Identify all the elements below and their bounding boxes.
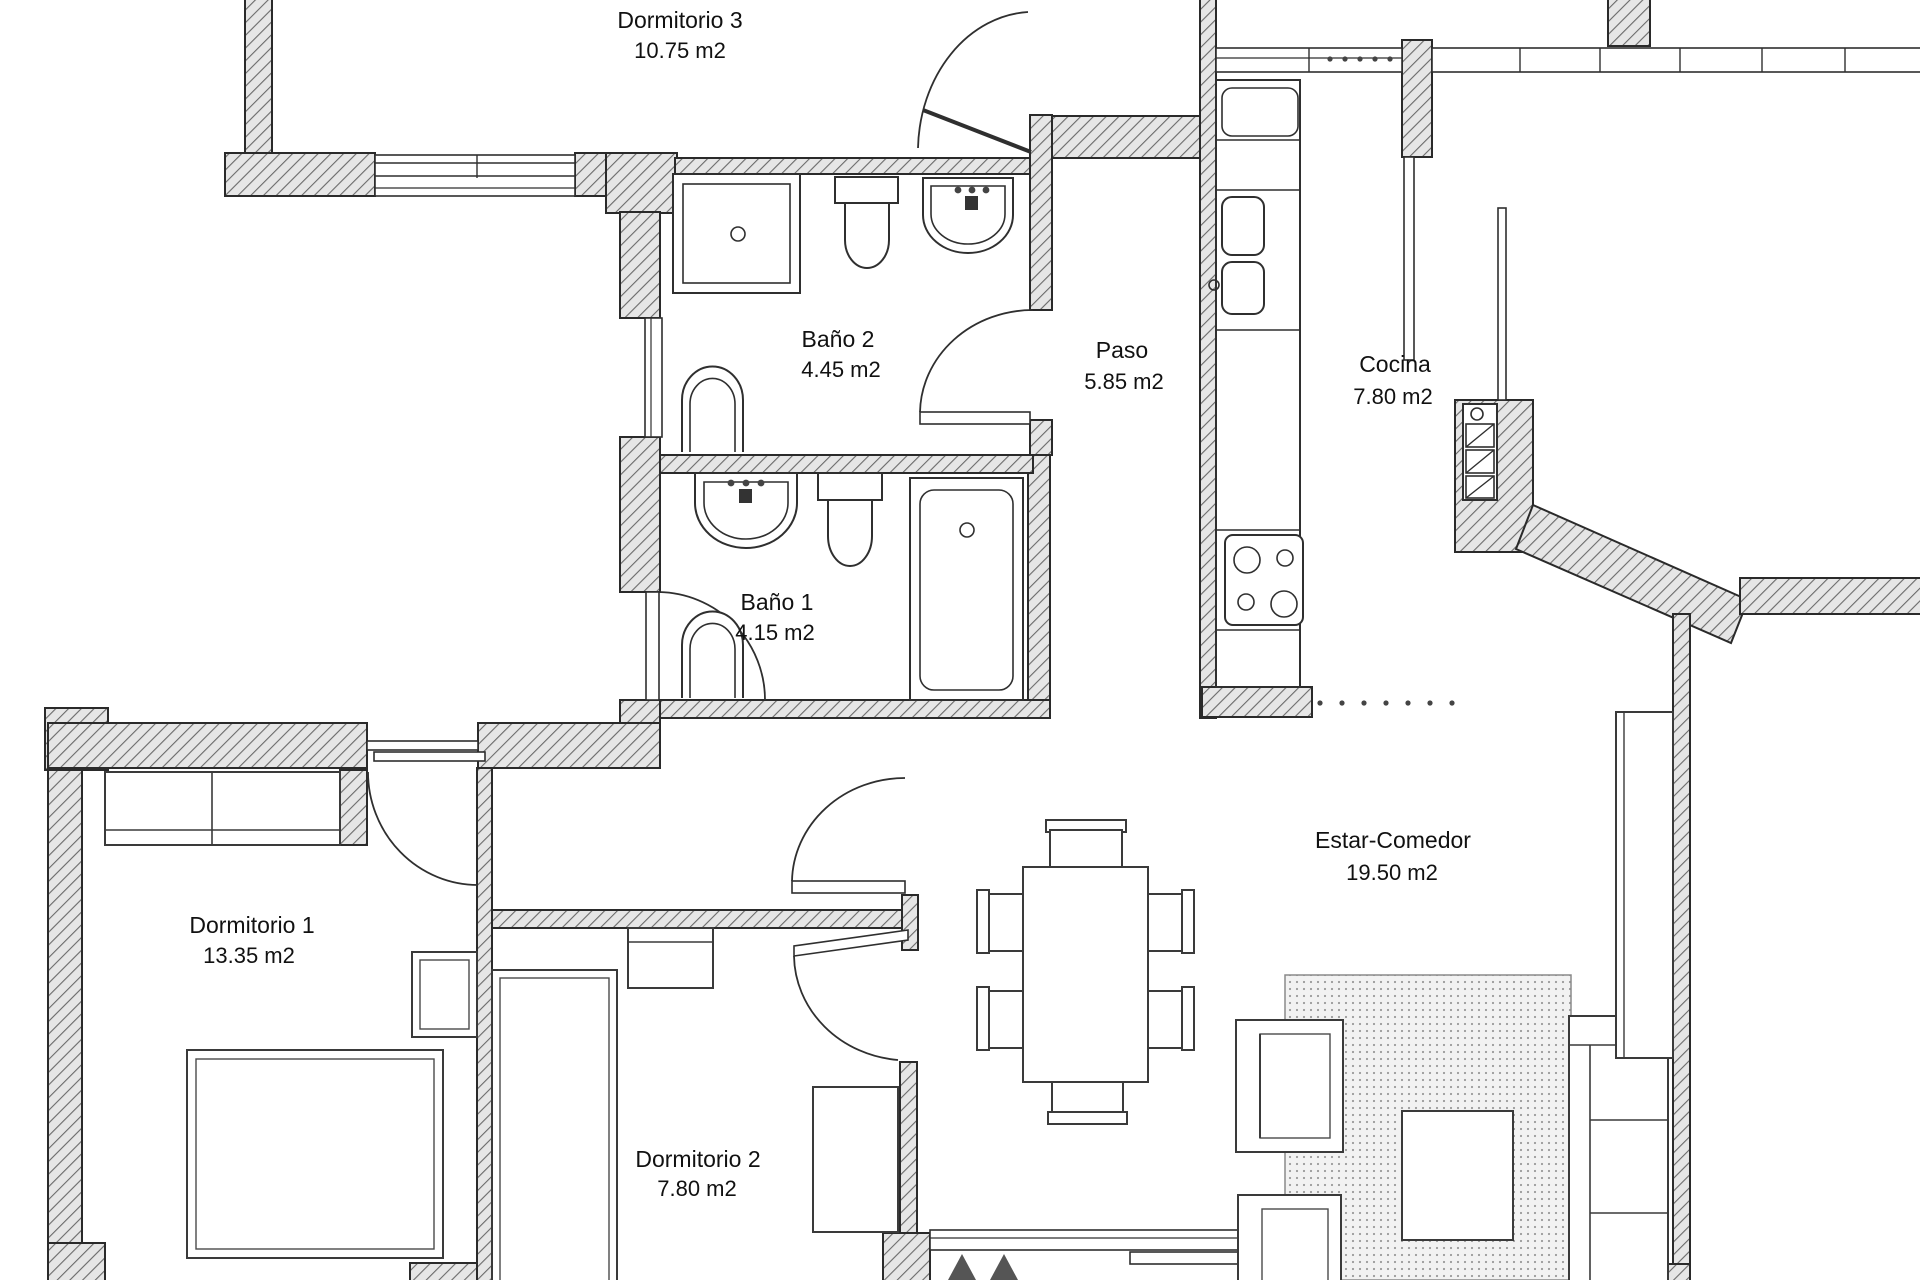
room-area: 19.50 m2	[1346, 860, 1438, 885]
label-dormitorio-2: Dormitorio 2 7.80 m2	[635, 1146, 760, 1201]
wall-segment	[48, 770, 82, 1243]
wall-segment	[1608, 0, 1650, 46]
wall-segment	[478, 723, 660, 768]
wall-segment	[606, 153, 677, 213]
room-name: Baño 2	[802, 326, 875, 352]
door-dormitorio-3	[918, 12, 1031, 152]
dormitorio-1-furniture	[105, 772, 477, 1258]
bathtub	[910, 478, 1023, 700]
label-paso: Paso 5.85 m2	[1084, 337, 1164, 394]
dining-chair	[977, 987, 1023, 1050]
wall-segment	[1740, 578, 1920, 614]
bano-2-fixtures	[673, 174, 1013, 452]
wall-duct	[645, 318, 662, 437]
window-gallery	[1432, 48, 1920, 72]
nightstand	[412, 952, 477, 1037]
wall-segment	[48, 723, 367, 768]
room-name: Dormitorio 1	[189, 912, 314, 938]
wall-segment	[477, 768, 492, 1280]
wall-segment	[883, 1233, 930, 1280]
window-arrow	[948, 1254, 976, 1280]
armchair	[1238, 1195, 1341, 1280]
dining-chair	[1148, 890, 1194, 953]
label-bano-2: Baño 2 4.45 m2	[801, 326, 881, 382]
room-area: 13.35 m2	[203, 943, 295, 968]
desk	[813, 1087, 898, 1232]
shelf-unit	[1616, 712, 1673, 1058]
dining-chair	[1048, 1082, 1127, 1124]
closet	[628, 928, 713, 988]
label-estar-comedor: Estar-Comedor 19.50 m2	[1315, 827, 1471, 885]
room-area: 4.15 m2	[735, 620, 815, 645]
room-area: 7.80 m2	[657, 1176, 737, 1201]
label-dormitorio-1: Dormitorio 1 13.35 m2	[189, 912, 314, 968]
room-name: Dormitorio 2	[635, 1146, 760, 1172]
label-bano-1: Baño 1 4.15 m2	[735, 589, 815, 645]
wall-segment	[1030, 115, 1052, 310]
bano-1-fixtures	[682, 473, 1023, 700]
wall-segment	[1052, 116, 1202, 158]
wall-segment	[1030, 420, 1052, 455]
room-area: 10.75 m2	[634, 38, 726, 63]
wardrobe	[105, 772, 340, 845]
wall-segment	[1402, 40, 1432, 157]
dining-chair	[977, 890, 1023, 953]
wall-segment	[660, 700, 1050, 718]
label-cocina: Cocina 7.80 m2	[1353, 351, 1433, 409]
wall-segment	[620, 212, 660, 318]
door-estar	[792, 778, 905, 893]
room-area: 5.85 m2	[1084, 369, 1164, 394]
room-name: Baño 1	[741, 589, 814, 615]
dining-chair	[1046, 820, 1126, 867]
dining-table	[1023, 867, 1148, 1082]
shower-tray	[673, 174, 800, 293]
toilet	[818, 473, 882, 566]
bed	[187, 1050, 443, 1258]
label-dormitorio-3: Dormitorio 3 10.75 m2	[617, 7, 742, 63]
sliding-door-dormitorio-1	[367, 741, 485, 761]
room-name: Estar-Comedor	[1315, 827, 1471, 853]
bed	[492, 970, 617, 1280]
window-estar	[930, 1230, 1240, 1280]
wall-segment	[1200, 0, 1216, 718]
room-area: 7.80 m2	[1353, 384, 1433, 409]
room-name: Paso	[1096, 337, 1148, 363]
room-area: 4.45 m2	[801, 357, 881, 382]
window-arrow	[990, 1254, 1018, 1280]
wall-segment	[48, 1243, 105, 1280]
washbasin	[695, 473, 797, 548]
wall-segment	[225, 153, 375, 196]
stove	[1225, 535, 1303, 625]
wall-segment	[675, 158, 1033, 174]
washbasin	[923, 178, 1013, 253]
floor-plan-drawing: Dormitorio 3 10.75 m2 Baño 2 4.45 m2 Pas…	[0, 0, 1920, 1280]
wall-segment	[1028, 455, 1050, 718]
bidet	[682, 611, 743, 698]
wall-segment	[340, 770, 367, 845]
door-dormitorio-1	[368, 772, 478, 885]
wall-segment	[575, 153, 608, 196]
wall-segment	[492, 910, 918, 928]
wall-segment	[902, 895, 918, 950]
duct-symbol	[1463, 404, 1497, 500]
dormitorio-2-furniture	[492, 928, 898, 1280]
dining-chair	[1148, 987, 1194, 1050]
wall-segment	[620, 437, 660, 592]
coffee-table	[1402, 1111, 1513, 1240]
wall-segment-diagonal	[1516, 505, 1748, 643]
dotted-separator-estar	[1317, 700, 1454, 705]
wall-segment	[410, 1263, 477, 1280]
wall-segment	[1202, 687, 1312, 717]
door-dormitorio-2	[794, 930, 908, 1060]
door-bano-2	[920, 310, 1033, 424]
toilet	[835, 177, 898, 268]
room-name: Dormitorio 3	[617, 7, 742, 33]
window-dormitorio-3	[375, 155, 575, 196]
wall-segment	[245, 0, 272, 155]
wall-segment	[660, 455, 1033, 473]
wall-segment	[900, 1062, 917, 1233]
bidet	[682, 366, 743, 452]
room-name: Cocina	[1359, 351, 1431, 377]
armchair	[1236, 1020, 1343, 1152]
wall-segment	[1673, 614, 1690, 1272]
floor-plan: Dormitorio 3 10.75 m2 Baño 2 4.45 m2 Pas…	[0, 0, 1920, 1280]
